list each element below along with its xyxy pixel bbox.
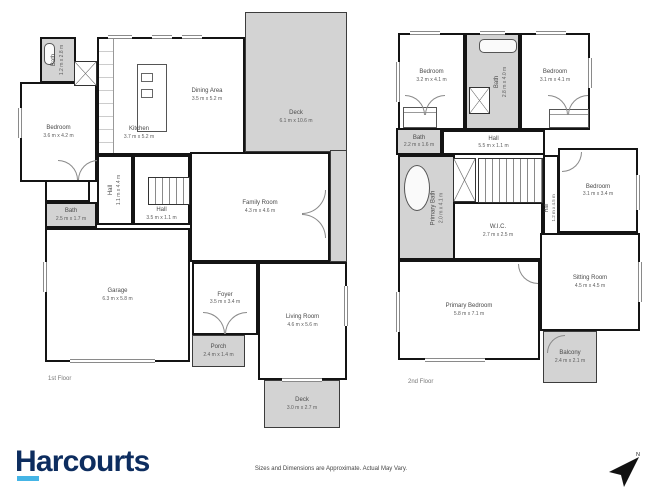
- floorplan-sheet: Deck 6.1 m x 10.6 m Kitchen 3.7 m x 5.2 …: [0, 0, 658, 493]
- harcourts-logo: Harcourts: [15, 445, 150, 479]
- sitting-room-f2: Sitting Room 4.5 m x 4.5 m: [540, 233, 640, 331]
- room-label: Bedroom 3.1 m x 4.1 m: [522, 68, 588, 84]
- window: [282, 378, 322, 382]
- room-label: Family Room 4.3 m x 4.6 m: [242, 199, 277, 215]
- living-room-f1: Living Room 4.6 m x 5.6 m: [258, 262, 347, 380]
- room-label: Hall 5.5 m x 1.1 m: [478, 136, 508, 149]
- balcony-f2: Balcony 2.4 m x 2.1 m: [543, 331, 597, 383]
- closet-x-f1: [74, 61, 97, 86]
- door-arc: [562, 152, 582, 172]
- room-label: Hall 3.5 m x 1.1 m: [135, 206, 188, 222]
- room-label-wrap: Hall 1.1 m x 4.4 m: [99, 157, 131, 223]
- room-label: Porch 2.4 m x 1.4 m: [203, 344, 233, 357]
- hall-vertical-f1: Hall 1.1 m x 4.4 m: [97, 155, 133, 225]
- hall-stairwell-f1: Hall 3.5 m x 1.1 m: [133, 155, 190, 225]
- logo-underline-bar: [17, 476, 39, 481]
- window: [18, 108, 22, 138]
- staircase-f1: [148, 177, 190, 205]
- deck-top-f1: Deck 6.1 m x 10.6 m: [245, 12, 347, 152]
- room-label: Deck 3.0 m x 2.7 m: [287, 396, 317, 412]
- deck-side-strip-f1: [330, 150, 347, 262]
- room-label-wrap: Bath 2.8 m x 4.0 m: [485, 35, 518, 128]
- bedroom-right-f2: Bedroom 3.1 m x 3.4 m: [558, 148, 638, 233]
- cooktop: [141, 73, 153, 82]
- window: [396, 62, 400, 102]
- window: [636, 175, 640, 210]
- primary-bedroom-f2: Primary Bedroom 5.8 m x 7.1 m: [398, 260, 540, 360]
- room-label: Bedroom 3.6 m x 4.2 m: [43, 124, 73, 140]
- window: [344, 286, 348, 326]
- closet-f1: [45, 180, 90, 202]
- room-label: W.I.C. 2.7 m x 2.5 m: [483, 223, 513, 239]
- bedroom-top-left-f2: Bedroom 3.2 m x 4.1 m: [398, 33, 465, 130]
- sink: [141, 89, 153, 98]
- room-label: Primary Bedroom 5.8 m x 7.1 m: [446, 302, 493, 318]
- room-label: Hall 1.1 m x 4.4 m: [107, 175, 123, 205]
- room-label: Hall 1.2 m x 4.5 m: [544, 194, 558, 221]
- room-label: Foyer 3.5 m x 3.4 m: [210, 291, 240, 307]
- window: [588, 58, 592, 88]
- kitchen-dining-room: Kitchen 3.7 m x 5.2 m Dining Area 3.5 m …: [97, 37, 245, 155]
- room-label: Kitchen 3.7 m x 5.2 m: [107, 125, 171, 141]
- floor-label-1: 1st Floor: [48, 376, 71, 382]
- foyer-f1: Foyer 3.5 m x 3.4 m: [192, 262, 258, 335]
- balcony-door-arc: [547, 335, 565, 353]
- window: [152, 35, 172, 39]
- deck-bottom-f1: Deck 3.0 m x 2.7 m: [264, 380, 340, 428]
- window: [638, 262, 642, 302]
- room-label: Bath 2.8 m x 4.0 m: [494, 66, 510, 96]
- bath-top-f1: Bath 1.2 m x 2.8 m: [40, 37, 76, 83]
- french-door-arc: [302, 190, 326, 214]
- disclaimer-text: Sizes and Dimensions are Approximate. Ac…: [226, 466, 436, 472]
- window: [43, 262, 47, 292]
- window: [396, 292, 400, 332]
- window: [480, 31, 505, 35]
- hall-f2: Hall 5.5 m x 1.1 m: [442, 130, 545, 155]
- bedroom-f1: Bedroom 3.6 m x 4.2 m: [20, 82, 97, 182]
- room-label: Bedroom 3.1 m x 3.4 m: [583, 183, 613, 199]
- room-label: Bath 1.2 m x 2.8 m: [50, 45, 66, 75]
- kitchen-island: [137, 64, 167, 132]
- room-label: Deck 6.1 m x 10.6 m: [246, 109, 346, 125]
- family-room-f1: Family Room 4.3 m x 4.6 m: [190, 152, 330, 262]
- bedroom-top-right-f2: Bedroom 3.1 m x 4.1 m: [520, 33, 590, 130]
- porch-f1: Porch 2.4 m x 1.4 m: [192, 335, 245, 367]
- bath-top-f2: Bath 2.8 m x 4.0 m: [465, 33, 520, 130]
- room-label: Bath 2.5 m x 1.7 m: [56, 208, 86, 221]
- entry-door-arc: [203, 312, 225, 334]
- room-label: Garage 6.3 m x 5.8 m: [102, 287, 132, 303]
- window: [108, 35, 132, 39]
- room-label: Sitting Room 4.5 m x 4.5 m: [573, 274, 607, 290]
- floor-label-2: 2nd Floor: [408, 379, 433, 385]
- room-label: Living Room 4.6 m x 5.6 m: [286, 313, 319, 329]
- compass-north-label: N: [636, 452, 640, 458]
- window: [182, 35, 202, 39]
- bath-left-f2: Bath 2.2 m x 1.6 m: [396, 128, 442, 155]
- primary-bath-f2: Primary Bath 2.0 m x 4.1 m: [398, 155, 455, 260]
- room-label-wrap: Primary Bath 2.0 m x 4.1 m: [422, 157, 453, 258]
- garage-door: [70, 359, 155, 363]
- closet-door-arc: [58, 160, 78, 180]
- window: [536, 31, 566, 35]
- window: [425, 358, 485, 362]
- wic-f2: W.I.C. 2.7 m x 2.5 m: [453, 202, 543, 260]
- closet-door-arc: [78, 160, 98, 180]
- french-door-arc: [302, 214, 326, 238]
- room-label: Dining Area 3.5 m x 5.2 m: [175, 87, 239, 103]
- bath-mid-f1: Bath 2.5 m x 1.7 m: [45, 202, 97, 228]
- entry-door-arc: [225, 312, 247, 334]
- garage-f1: Garage 6.3 m x 5.8 m: [45, 228, 190, 362]
- staircase-f2: [478, 158, 543, 203]
- compass-icon: [604, 446, 649, 491]
- room-label: Bath 2.2 m x 1.6 m: [404, 135, 434, 148]
- window: [410, 31, 440, 35]
- room-label: Bedroom 3.2 m x 4.1 m: [400, 68, 463, 84]
- door-arc: [518, 264, 538, 284]
- closet-x2-f2: [453, 158, 476, 202]
- room-label-wrap: Bath 1.2 m x 2.8 m: [42, 39, 74, 81]
- room-label: Primary Bath 2.0 m x 4.1 m: [430, 190, 446, 225]
